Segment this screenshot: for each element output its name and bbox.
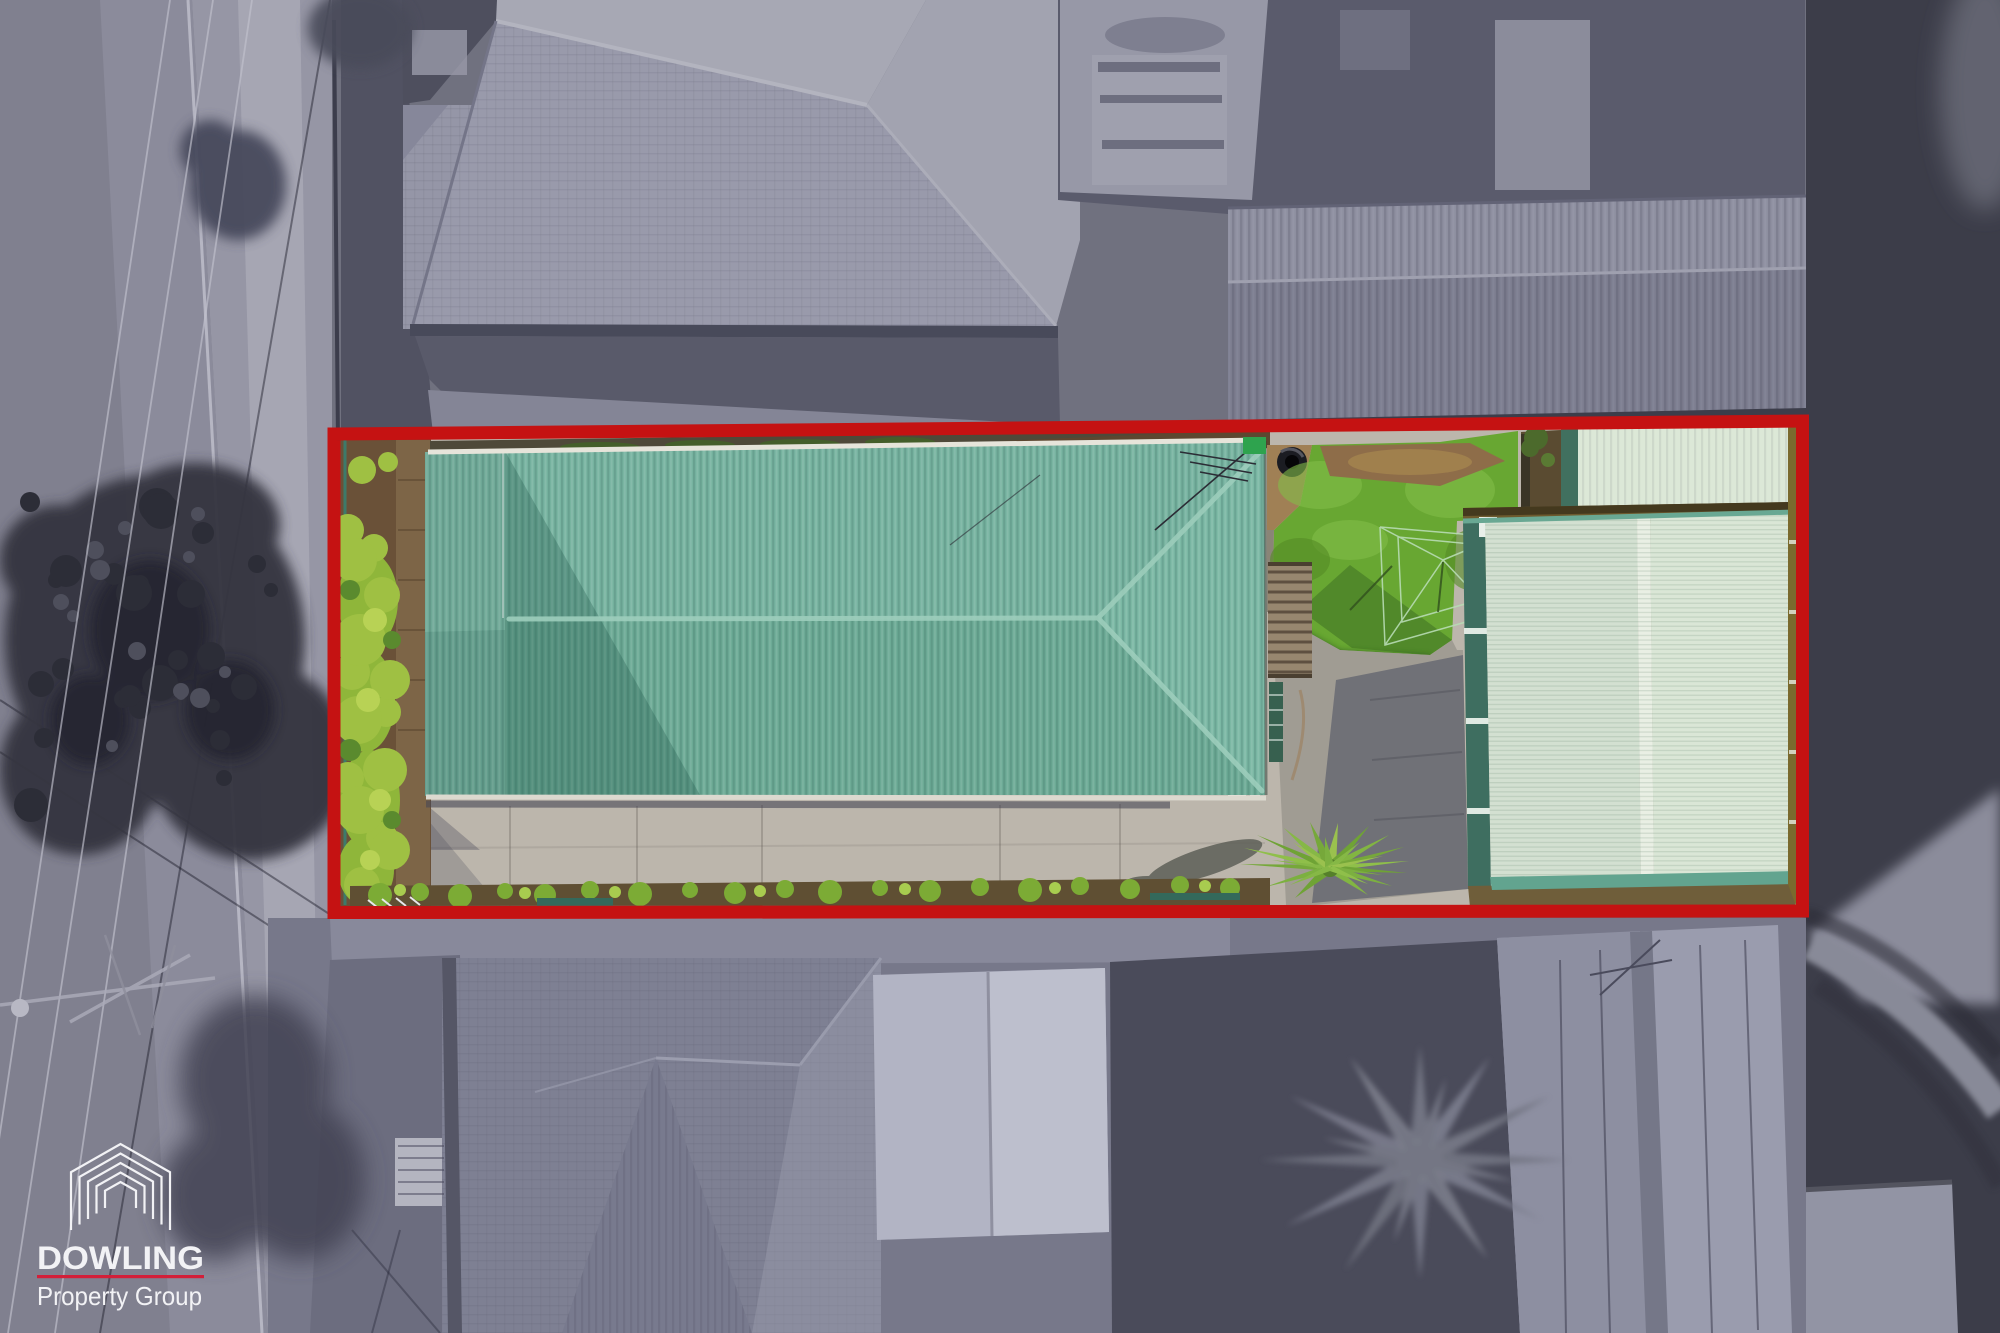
svg-text:Property Group: Property Group xyxy=(37,1281,202,1311)
svg-text:DOWLING: DOWLING xyxy=(37,1240,204,1276)
